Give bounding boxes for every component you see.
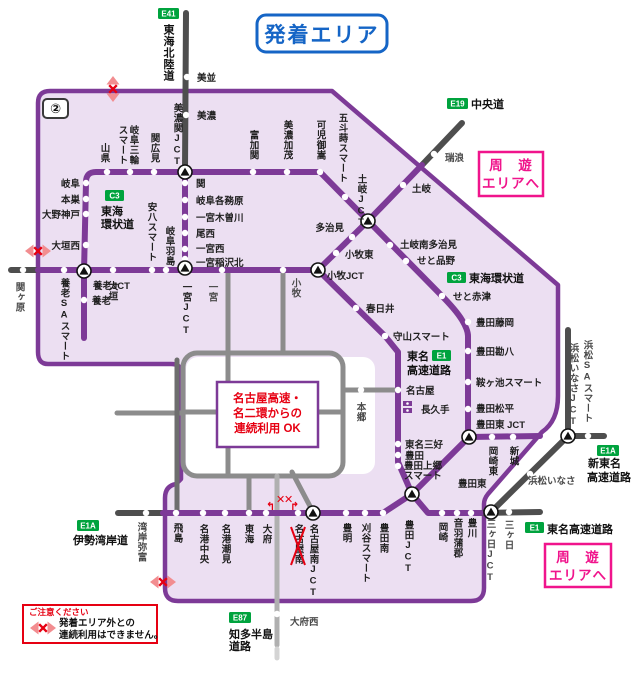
station-dot	[431, 151, 437, 157]
station-label: 名古屋	[406, 385, 435, 397]
c3-east-badge: C3	[447, 272, 466, 283]
station-dot	[465, 348, 471, 354]
c3-east-badge-label: C3	[451, 274, 462, 283]
station-dot	[280, 267, 286, 273]
station-dot	[382, 333, 388, 339]
e1-bottom-badge: E1	[525, 522, 544, 533]
toyota-jct-marker	[405, 487, 419, 501]
station-label: 関広見	[149, 133, 162, 163]
expressway-area-map: E41 E19 C3 C3 E1 E1 E1A E1A E87 東海北陸道 中央…	[0, 0, 640, 671]
station-dot	[182, 180, 188, 186]
station-label: 一宮西	[196, 243, 225, 255]
station-dot	[395, 387, 401, 393]
caution-box: ご注意ください 発着エリア外との 連続利用はできません。	[23, 605, 163, 643]
renzoku-ok-line2: 名二環からの	[233, 406, 302, 420]
station-dot	[454, 510, 460, 516]
station-label: 豊田JCT	[403, 519, 415, 574]
station-label: 可児御嵩	[315, 120, 328, 160]
caution-title: ご注意ください	[29, 607, 89, 617]
e1-tomei-badge: E1	[432, 350, 451, 361]
station-label: 音羽蒲郡	[452, 517, 465, 558]
station-label: 鞍ヶ池スマート	[476, 377, 542, 389]
station-dot	[182, 230, 188, 236]
station-dot	[395, 463, 401, 469]
station-dot	[151, 169, 157, 175]
station-label: 浜松いなさJCT	[568, 342, 580, 427]
station-label: 浜松SAスマート	[582, 339, 594, 423]
e1a-isewangan-badge: E1A	[77, 520, 99, 531]
station-label: 刈谷スマート	[360, 522, 372, 583]
komaki-jct-marker	[311, 263, 325, 277]
station-dot	[163, 267, 169, 273]
station-label: 名港中央	[198, 523, 210, 564]
station-dot	[182, 214, 188, 220]
shintomei-inside	[469, 436, 540, 437]
caution-line2: 連続利用はできません。	[59, 629, 163, 641]
station-label: 岐阜羽島	[164, 225, 176, 266]
station-dot	[489, 434, 495, 440]
station-dot	[274, 611, 280, 617]
station-dot	[81, 297, 87, 303]
road-label-isewangan: 伊勢湾岸道	[72, 533, 128, 547]
station-dot	[83, 242, 89, 248]
station-dot	[104, 169, 110, 175]
c3-west-badge: C3	[105, 190, 124, 201]
station-label: 豊田松平	[476, 403, 515, 415]
station-label: せと品野	[417, 256, 456, 267]
hamamatsu-inasa-jct-marker	[561, 429, 575, 443]
station-label: 本郷	[355, 401, 367, 422]
station-label: 豊田勘八	[476, 346, 515, 358]
station-label: 豊田東	[458, 478, 487, 490]
map-canvas: E41 E19 C3 C3 E1 E1 E1A E1A E87 東海北陸道 中央…	[0, 0, 640, 671]
station-dot	[362, 510, 368, 516]
renzoku-ok-box: 名古屋高速・ 名二環からの 連続利用 OK	[217, 382, 318, 447]
road-label-tomei-2: 高速道路	[407, 363, 452, 377]
e1a-isewangan-badge-label: E1A	[80, 522, 96, 531]
station-dot	[439, 510, 445, 516]
road-label-tomei-1: 東名	[407, 349, 429, 363]
e19-badge: E19	[447, 98, 468, 109]
station-label: 岡崎	[437, 522, 449, 542]
station-label: 三ヶ日	[503, 520, 515, 550]
e41-north-segment	[185, 13, 186, 170]
station-label: 小牧	[290, 277, 303, 298]
station-dot	[349, 234, 355, 240]
station-label: 美並	[196, 72, 217, 84]
station-dot	[317, 169, 323, 175]
road-label-chita-2: 道路	[229, 639, 252, 653]
station-label: 小牧東	[344, 249, 374, 261]
area-number-label: ②	[50, 101, 61, 116]
station-label: 美濃	[196, 110, 217, 122]
station-dot	[358, 387, 364, 393]
station-label: スマート	[117, 125, 129, 165]
e19-badge-label: E19	[450, 100, 465, 109]
station-label: 五斗蒔スマート	[337, 113, 349, 183]
station-label: 土岐南多治見	[400, 239, 458, 251]
station-label: 本巣	[61, 194, 81, 206]
station-dot	[61, 267, 67, 273]
shuyu-bottom-line1: 周 遊	[556, 549, 600, 565]
station-dot	[468, 510, 474, 516]
station-dot	[246, 510, 252, 516]
station-dot	[250, 169, 256, 175]
station-dot	[200, 510, 206, 516]
c3-west-badge-label: C3	[109, 192, 120, 201]
e87-badge: E87	[229, 612, 251, 623]
station-label: 東海	[243, 523, 256, 544]
station-label: 一宮稲沢北	[196, 257, 244, 269]
nagoya-minami-jct-marker	[306, 506, 320, 520]
station-label: 浜松いなさ	[528, 475, 576, 487]
station-label: 尾西	[195, 229, 216, 240]
station-label: 富加関	[248, 129, 261, 160]
station-dot	[83, 196, 89, 202]
e1a-shintomei-badge-label: E1A	[600, 447, 616, 456]
station-label: 一宮	[207, 282, 219, 302]
road-label-shintomei-2: 高速道路	[587, 470, 632, 484]
page-title: 発着エリア	[264, 23, 380, 47]
station-label: 豊田南	[378, 522, 390, 553]
e1-bottom-badge-label: E1	[530, 524, 540, 533]
station-label: 大垣西	[51, 240, 80, 252]
station-label: 大府	[261, 523, 273, 544]
station-label: 安八スマート	[146, 201, 159, 262]
road-label-shintomei-1: 新東名	[588, 456, 621, 470]
road-label-tomei-bottom: 東名高速道路	[547, 522, 614, 536]
shuyu-top-line1: 周 遊	[489, 157, 533, 173]
station-label: 美濃関JCT	[172, 102, 185, 167]
station-label: 岐阜	[61, 178, 81, 190]
station-label: 守山スマート	[393, 331, 450, 343]
road-label-tokai-kanjo-w1: 東海	[101, 204, 123, 218]
station-dot	[380, 510, 386, 516]
station-label: 新城	[508, 445, 520, 466]
station-label: 春日井	[365, 303, 395, 315]
station-dot	[465, 319, 471, 325]
station-label: 岡崎東	[487, 446, 500, 476]
toyota-higashi-jct-marker	[462, 430, 476, 444]
e41-badge-label: E41	[161, 10, 176, 19]
station-dot	[465, 379, 471, 385]
station-dot	[395, 452, 401, 458]
station-dot	[333, 250, 339, 256]
station-label: 豊明	[341, 522, 353, 543]
station-label: スマート	[404, 471, 442, 482]
station-dot	[222, 510, 228, 516]
shuyu-top-line2: エリアへ	[482, 176, 540, 191]
station-label: 三ヶ日JCT	[485, 519, 497, 584]
station-dot	[20, 267, 26, 273]
road-label-chita-1: 知多半島	[228, 627, 273, 641]
station-dot	[353, 305, 359, 311]
caution-line1: 発着エリア外との	[58, 617, 135, 629]
shuyu-area-box-bottom: 周 遊 エリアへ	[545, 544, 611, 587]
station-label: 山県	[99, 142, 111, 163]
station-dot	[342, 194, 348, 200]
station-dot	[506, 509, 512, 515]
station-dot	[387, 242, 393, 248]
e1a-shintomei-badge: E1A	[597, 445, 619, 456]
station-dot	[183, 112, 189, 118]
station-dot	[182, 246, 188, 252]
station-label: 湾岸弥富	[136, 521, 148, 562]
road-label-tokai-kanjo-w2: 環状道	[101, 217, 134, 231]
station-label: 土岐	[412, 183, 432, 195]
station-label: 岐阜三輪	[128, 124, 140, 165]
yoro-jct-marker	[77, 264, 91, 278]
title-box: 発着エリア	[257, 15, 387, 52]
station-label: 長久手	[421, 404, 450, 416]
station-label: 豊田藤岡	[476, 317, 514, 329]
station-label: 大府西	[290, 616, 319, 628]
renzoku-ok-line1: 名古屋高速・	[233, 391, 302, 405]
station-dot	[127, 169, 133, 175]
station-label: 小牧JCT	[326, 270, 364, 282]
road-label-chuo: 中央道	[471, 97, 504, 111]
station-dot	[110, 267, 116, 273]
e41-badge: E41	[158, 8, 179, 19]
station-label: 大野神戸	[42, 209, 81, 221]
station-dot	[400, 182, 406, 188]
station-dot	[182, 197, 188, 203]
station-dot	[510, 434, 516, 440]
no-ramp-x-right-icon: ✕	[284, 494, 293, 506]
station-label: 名古屋南JCT	[308, 523, 320, 598]
ichinomiya-jct-marker	[178, 261, 192, 275]
station-dot	[83, 180, 89, 186]
station-label: 一宮JCT	[181, 282, 193, 337]
station-dot	[585, 433, 591, 439]
station-label: 豊川	[466, 517, 479, 538]
shuyu-area-box-top: 周 遊 エリアへ	[479, 152, 543, 196]
station-label: 美濃加茂	[282, 119, 295, 160]
station-dot	[184, 74, 190, 80]
station-label: 養老SAスマート	[59, 277, 72, 361]
station-label: せと赤津	[453, 291, 492, 303]
shuyu-bottom-line2: エリアへ	[549, 568, 607, 583]
station-label: 関	[196, 179, 206, 190]
e1-tomei-badge-label: E1	[437, 352, 447, 361]
station-label: 東名三好	[404, 439, 444, 451]
station-label: 飛島	[172, 523, 185, 543]
station-dot	[284, 169, 290, 175]
area-number-badge: ②	[43, 99, 68, 118]
station-dot	[343, 510, 349, 516]
e87-badge-label: E87	[233, 614, 248, 623]
station-dot	[143, 510, 149, 516]
station-label: 一宮木曽川	[196, 212, 244, 224]
station-label: 瑞浪	[445, 152, 465, 164]
station-label: 土岐JCT	[356, 173, 368, 228]
station-label: 岐阜各務原	[196, 195, 244, 207]
station-dot	[83, 211, 89, 217]
station-label: 多治見	[315, 222, 344, 234]
station-dot	[149, 267, 155, 273]
station-dot	[439, 293, 445, 299]
station-label: 豊田東 JCT	[476, 419, 525, 431]
station-dot	[395, 441, 401, 447]
station-dot	[465, 406, 471, 412]
road-label-tokai-kanjo-e: 東海環状道	[469, 271, 524, 285]
station-label: 名港潮見	[220, 523, 233, 564]
road-label-tokai-hokuriku: 東海北陸道	[162, 23, 175, 82]
station-dot	[173, 510, 179, 516]
no-ramp-arrow-left-icon: ↰	[266, 501, 275, 513]
renzoku-ok-line3: 連続利用 OK	[234, 421, 301, 435]
station-dot	[403, 258, 409, 264]
mikkabi-jct-marker	[484, 505, 498, 519]
station-label: 関ヶ原	[14, 282, 26, 312]
station-label: 大垣	[107, 280, 119, 301]
